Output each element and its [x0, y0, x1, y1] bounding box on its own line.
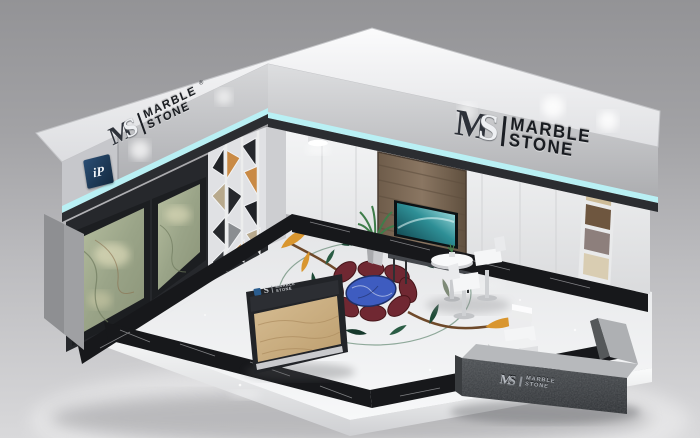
exhibition-booth-render: MS MARBLE STONE ® MS MARBLE STONE iP S M…	[0, 0, 700, 438]
left-outer-wall-shade	[44, 214, 64, 334]
spotlight-glow	[542, 96, 564, 118]
spotlight-glow	[216, 89, 232, 105]
furniture-shadow	[426, 296, 510, 314]
onyx-glow	[165, 206, 191, 224]
petal	[360, 305, 386, 321]
spotlight-glow	[458, 103, 476, 121]
booth-scene	[0, 0, 700, 438]
spotlight-glow	[130, 140, 150, 160]
spotlight-glow	[598, 111, 618, 131]
onyx-glow	[88, 291, 112, 309]
counter-left-side	[455, 355, 462, 396]
